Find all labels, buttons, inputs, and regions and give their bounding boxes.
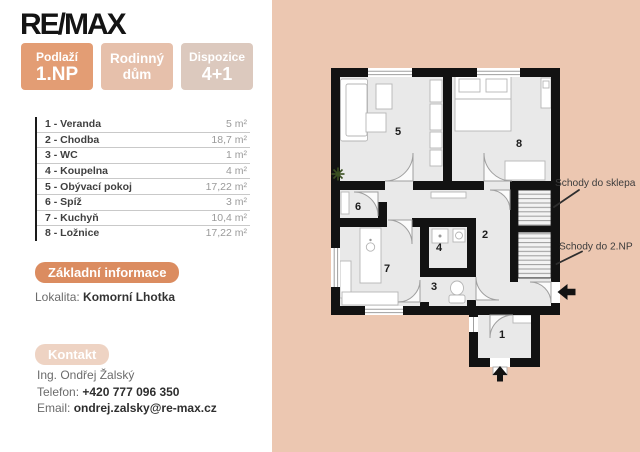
room-area: 5 m² <box>226 118 247 130</box>
toilet-icon <box>449 281 465 303</box>
stairs-basement-icon <box>518 190 551 226</box>
agent-name: Ing. Ondřej Žalský <box>37 367 217 384</box>
bed-icon <box>455 75 511 131</box>
sofa-icon <box>341 79 368 141</box>
room-area: 4 m² <box>226 165 247 177</box>
floor-plan-panel: 5 8 6 2 4 7 3 1 Schody do sklepa Schody … <box>272 0 640 452</box>
floor-badge: Podlaží 1.NP <box>21 43 93 90</box>
property-badges: Podlaží 1.NP Rodinný dům Dispozice 4+1 <box>21 43 253 90</box>
agent-email-line: Email: ondrej.zalsky@re-max.cz <box>37 400 217 417</box>
room-name: 1 - Veranda <box>45 118 101 130</box>
floor-badge-label: Podlaží <box>21 50 93 64</box>
cabinet-column-icon <box>430 80 442 166</box>
email-value: ondrej.zalsky@re-max.cz <box>74 401 217 415</box>
table-row: 8 - Ložnice17,22 m² <box>37 226 250 241</box>
room-name: 2 - Chodba <box>45 134 99 146</box>
window-living <box>368 68 412 77</box>
room-area: 17,22 m² <box>206 227 247 239</box>
room-area: 18,7 m² <box>211 134 247 146</box>
floor-badge-value: 1.NP <box>21 65 93 84</box>
contact-block: Ing. Ondřej Žalský Telefon: +420 777 096… <box>37 367 217 417</box>
bathroom-sink-icon <box>432 229 448 243</box>
house-type-badge: Rodinný dům <box>101 43 173 90</box>
room-number-3: 3 <box>431 281 437 293</box>
floor-plan: 5 8 6 2 4 7 3 1 Schody do sklepa Schody … <box>272 0 640 452</box>
window-bedroom <box>477 68 520 77</box>
wardrobe-icon <box>505 161 545 180</box>
table-row: 4 - Koupelna4 m² <box>37 164 250 180</box>
stairs <box>518 190 551 278</box>
room-table: 1 - Veranda5 m² 2 - Chodba18,7 m² 3 - WC… <box>35 117 250 241</box>
contact-badge: Kontakt <box>35 344 109 365</box>
washer-icon <box>453 229 465 242</box>
table-row: 2 - Chodba18,7 m² <box>37 133 250 149</box>
email-label: Email: <box>37 401 70 415</box>
kitchen-island-icon <box>360 228 381 283</box>
table-row: 1 - Veranda5 m² <box>37 117 250 133</box>
room-number-4: 4 <box>436 242 443 254</box>
stairs-upper-icon <box>518 232 551 278</box>
window-kitchen-bottom <box>365 306 403 315</box>
room-name: 4 - Koupelna <box>45 165 108 177</box>
locality-label: Lokalita: <box>35 290 80 304</box>
window-veranda <box>469 317 478 332</box>
side-entrance-arrow-icon <box>558 284 576 300</box>
table-row: 7 - Kuchyň10,4 m² <box>37 211 250 227</box>
remax-logo: RE/MAX <box>20 8 125 42</box>
locality-value: Komorní Lhotka <box>83 290 175 304</box>
room-number-1: 1 <box>499 329 505 341</box>
pantry-shelf-icon <box>341 192 349 214</box>
layout-badge-value: 4+1 <box>181 65 253 84</box>
room-name: 6 - Spíž <box>45 196 82 208</box>
room-name: 3 - WC <box>45 149 78 161</box>
label-stairs-upper: Schody do 2.NP <box>559 242 633 253</box>
room-number-2: 2 <box>482 229 488 241</box>
basic-info-badge: Základní informace <box>35 262 179 283</box>
kitchen-counter-bottom-icon <box>342 292 398 305</box>
layout-badge: Dispozice 4+1 <box>181 43 253 90</box>
phone-label: Telefon: <box>37 385 79 399</box>
house-type-line2: dům <box>101 67 173 82</box>
window-kitchen-left <box>331 248 340 287</box>
room-area: 17,22 m² <box>206 181 247 193</box>
phone-value: +420 777 096 350 <box>82 385 179 399</box>
hall-shelf-icon <box>431 192 466 198</box>
room-area: 10,4 m² <box>211 212 247 224</box>
table-row: 5 - Obývací pokoj17,22 m² <box>37 179 250 195</box>
info-panel: RE/MAX Podlaží 1.NP Rodinný dům Dispozic… <box>0 0 272 452</box>
room-number-6: 6 <box>355 201 361 213</box>
coffee-table-icon <box>366 113 386 132</box>
table-row: 6 - Spíž3 m² <box>37 195 250 211</box>
room-area: 3 m² <box>226 196 247 208</box>
locality-line: Lokalita: Komorní Lhotka <box>35 290 175 304</box>
room-name: 5 - Obývací pokoj <box>45 181 132 193</box>
label-stairs-basement: Schody do sklepa <box>555 178 636 189</box>
layout-badge-label: Dispozice <box>181 50 253 64</box>
table-row: 3 - WC1 m² <box>37 148 250 164</box>
flyer-page: RE/MAX Podlaží 1.NP Rodinný dům Dispozic… <box>0 0 640 452</box>
tall-cabinet-icon <box>541 78 551 108</box>
agent-phone-line: Telefon: +420 777 096 350 <box>37 384 217 401</box>
house-type-line1: Rodinný <box>101 51 173 66</box>
room-number-8: 8 <box>516 138 522 150</box>
callout-line-upper <box>557 252 583 265</box>
room-number-5: 5 <box>395 126 401 138</box>
room-name: 7 - Kuchyň <box>45 212 99 224</box>
room-name: 8 - Ložnice <box>45 227 99 239</box>
room-area: 1 m² <box>226 149 247 161</box>
room-number-7: 7 <box>384 263 390 275</box>
shelf-icon <box>376 84 392 109</box>
